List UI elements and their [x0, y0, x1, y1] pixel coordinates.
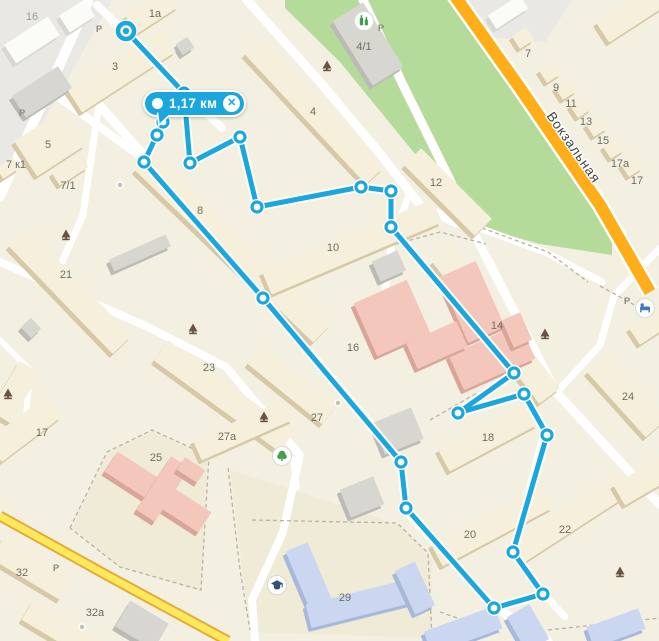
- building-label: 15: [597, 135, 609, 147]
- building-label: 24: [622, 391, 634, 403]
- bed-leg: [640, 310, 642, 312]
- cap-base: [274, 585, 280, 590]
- vertex-ring: [356, 182, 366, 192]
- building-label: 17: [631, 175, 643, 187]
- vertex-ring: [509, 368, 519, 378]
- vertex-ring: [152, 130, 162, 140]
- monument-pole: [544, 332, 546, 339]
- vertex-ring: [139, 157, 149, 167]
- route-vertex[interactable]: [505, 544, 521, 560]
- poi-dot: [117, 182, 123, 188]
- building-label: 32: [16, 567, 28, 579]
- parking-label: P: [378, 23, 385, 34]
- building-label: 11: [565, 98, 576, 110]
- vertex-ring: [542, 430, 552, 440]
- building-label: 16: [347, 342, 359, 354]
- monument-base: [189, 333, 197, 335]
- monument-base: [541, 338, 549, 340]
- monument-base: [4, 398, 12, 400]
- building-label: 27: [311, 412, 323, 424]
- bed: [640, 307, 650, 311]
- building-label: 4: [310, 106, 316, 118]
- close-measurement-icon[interactable]: ✕: [223, 95, 240, 112]
- route-vertex[interactable]: [232, 129, 248, 145]
- route-vertex[interactable]: [486, 600, 502, 616]
- building-label: 13: [580, 116, 592, 128]
- route-vertex[interactable]: [383, 219, 399, 235]
- parking-label: P: [53, 563, 60, 574]
- route-vertex[interactable]: [516, 386, 532, 402]
- building-label: 9: [553, 82, 559, 94]
- building-label: 10: [327, 242, 339, 254]
- monument-pole: [7, 392, 9, 399]
- building-label: 16: [26, 11, 38, 23]
- parking-label: P: [19, 108, 26, 119]
- tree-trunk: [281, 457, 283, 461]
- monument-base: [323, 70, 331, 72]
- vertex-ring: [508, 547, 518, 557]
- measure-dot-icon: [152, 98, 163, 109]
- monument-pole: [619, 570, 621, 577]
- bottle-neck: [361, 15, 363, 18]
- vertex-ring: [538, 589, 548, 599]
- monument-pole: [65, 233, 67, 240]
- route-vertex[interactable]: [249, 199, 265, 215]
- park-poi-icon[interactable]: [273, 447, 292, 466]
- vertex-ring: [519, 389, 529, 399]
- building-label: 17: [36, 427, 48, 439]
- distance-value: 1,17 км: [169, 96, 217, 111]
- bottle-neck: [366, 17, 367, 20]
- route-start-marker[interactable]: [115, 20, 138, 43]
- building-label: 8: [197, 205, 203, 217]
- building-label: 3: [112, 61, 118, 73]
- route-vertex[interactable]: [255, 290, 271, 306]
- building-label: 7 к1: [6, 159, 26, 171]
- distance-measurement-balloon[interactable]: 1,17 км ✕: [143, 90, 246, 117]
- route-vertex[interactable]: [383, 183, 399, 199]
- building-label: 7: [525, 48, 531, 60]
- monument-pole: [263, 415, 265, 422]
- hotel-poi-icon[interactable]: [636, 299, 655, 318]
- building-label: 5: [45, 139, 51, 151]
- school-poi-icon[interactable]: [268, 576, 287, 595]
- monument-base: [616, 576, 624, 578]
- building-label: 18: [482, 432, 494, 444]
- vertex-ring: [258, 293, 268, 303]
- building-label: 17a: [611, 158, 630, 170]
- route-vertex[interactable]: [450, 405, 466, 421]
- vertex-ring: [252, 202, 262, 212]
- building-label: 1a: [149, 8, 162, 20]
- vertex-ring: [489, 603, 499, 613]
- vertex-ring: [185, 158, 195, 168]
- parking-label: P: [96, 24, 103, 35]
- building-label: 25: [150, 452, 162, 464]
- building-label: 29: [339, 592, 351, 604]
- start-dot: [123, 28, 129, 34]
- building-label: 27a: [218, 431, 237, 443]
- building-label: 22: [559, 524, 571, 536]
- monument-pole: [326, 64, 328, 71]
- parking-label: P: [624, 296, 631, 307]
- vertex-ring: [401, 503, 411, 513]
- building-label: 4/1: [356, 41, 371, 53]
- building-label: 7/1: [60, 180, 75, 192]
- building-label: 20: [464, 529, 476, 541]
- vertex-ring: [235, 132, 245, 142]
- route-vertex[interactable]: [535, 586, 551, 602]
- monument-base: [62, 239, 70, 241]
- building-label: 21: [60, 269, 72, 281]
- bottle: [360, 18, 363, 26]
- vertex-ring: [386, 186, 396, 196]
- building-label: 12: [430, 177, 442, 189]
- route-vertex[interactable]: [353, 179, 369, 195]
- pillow: [641, 303, 644, 306]
- building-label: 32a: [86, 607, 105, 619]
- shop-poi-icon[interactable]: [355, 12, 374, 31]
- poi-circle: [355, 12, 374, 31]
- poi-dot: [335, 400, 341, 406]
- vertex-ring: [453, 408, 463, 418]
- vertex-ring: [386, 222, 396, 232]
- map-canvas[interactable]: 161aP3P57 к17/184/1P4127911131517a172110…: [0, 0, 659, 641]
- bottle: [365, 19, 368, 25]
- building-label: 23: [203, 362, 215, 374]
- poi-dot: [79, 624, 85, 630]
- monument-base: [260, 421, 268, 423]
- building-label: 14: [491, 320, 503, 332]
- bed-leg: [649, 310, 651, 312]
- vertex-ring: [396, 457, 406, 467]
- route-vertex[interactable]: [182, 155, 198, 171]
- monument-pole: [192, 327, 194, 334]
- route-vertex[interactable]: [136, 154, 152, 170]
- route-vertex[interactable]: [539, 427, 555, 443]
- route-vertex[interactable]: [393, 454, 409, 470]
- route-vertex[interactable]: [506, 365, 522, 381]
- map-svg: 161aP3P57 к17/184/1P4127911131517a172110…: [0, 0, 659, 641]
- route-vertex[interactable]: [398, 500, 414, 516]
